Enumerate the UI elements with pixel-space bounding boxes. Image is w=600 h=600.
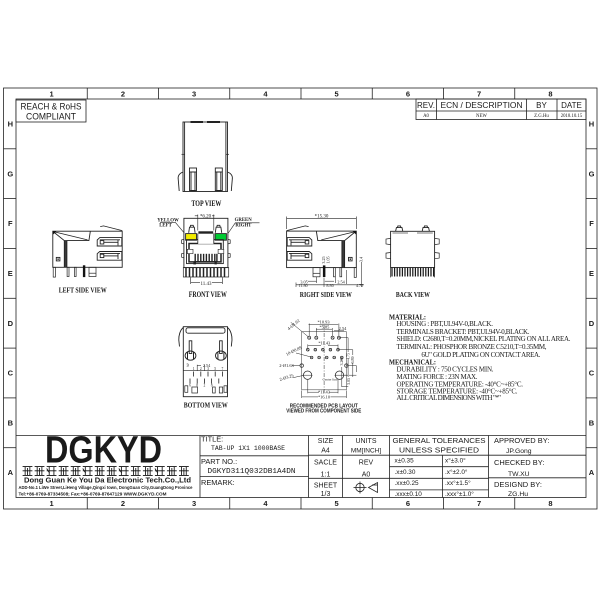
svg-text:G: G	[7, 169, 13, 178]
svg-text:Z.G.Hu: Z.G.Hu	[534, 114, 549, 119]
svg-text:3.4: 3.4	[359, 256, 364, 262]
svg-text:2: 2	[204, 384, 206, 388]
svg-text:3: 3	[192, 90, 196, 99]
svg-text:DATE: DATE	[561, 101, 582, 110]
svg-text:*5.85: *5.85	[319, 324, 330, 329]
svg-text:B: B	[8, 418, 14, 427]
svg-text:APPROVED BY:: APPROVED BY:	[494, 436, 549, 445]
svg-text:RIGHT SIDE VIEW: RIGHT SIDE VIEW	[300, 290, 352, 299]
svg-text:SHIELD: C2680,T=0.20MM,NICKEL: SHIELD: C2680,T=0.20MM,NICKEL PLATING ON…	[397, 335, 571, 343]
svg-text:MM[INCH]: MM[INCH]	[351, 448, 382, 455]
svg-text:LEFT SIDE VIEW: LEFT SIDE VIEW	[59, 286, 107, 295]
svg-text:H: H	[589, 120, 594, 129]
svg-text:FRONT VIEW: FRONT VIEW	[189, 290, 227, 299]
svg-text:ECN / DESCRIPTION: ECN / DESCRIPTION	[441, 101, 523, 110]
svg-text:TW.XU: TW.XU	[508, 471, 530, 478]
svg-text:TOP VIEW: TOP VIEW	[191, 199, 221, 208]
svg-text:SIZE: SIZE	[318, 438, 334, 445]
svg-text:1: 1	[50, 499, 54, 508]
svg-text:ZG.Hu: ZG.Hu	[508, 491, 528, 498]
svg-text:6: 6	[189, 384, 191, 388]
svg-text:2.54: 2.54	[337, 279, 345, 284]
svg-text:1.05: 1.05	[326, 256, 331, 263]
svg-text:GREEN: GREEN	[235, 218, 253, 223]
svg-text:3.25: 3.25	[339, 359, 344, 366]
svg-text:H: H	[8, 120, 13, 129]
svg-text:8.80: 8.80	[326, 283, 333, 288]
svg-text:11.43: 11.43	[200, 282, 212, 287]
svg-text:2-Ø1.63: 2-Ø1.63	[279, 363, 294, 368]
svg-text:*11.43: *11.43	[318, 341, 331, 346]
svg-text:GENERAL TOLERANCES: GENERAL TOLERANCES	[393, 438, 486, 445]
svg-text:VIEWED FROM COMPONENT SIDE: VIEWED FROM COMPONENT SIDE	[286, 409, 361, 415]
svg-text:JP.Gong: JP.Gong	[506, 448, 532, 455]
svg-text:2: 2	[121, 90, 125, 99]
svg-text:3.05: 3.05	[346, 378, 351, 385]
svg-text:*15.30: *15.30	[315, 215, 329, 220]
svg-text:F: F	[8, 219, 13, 228]
svg-text:Dong Guan Ke You Da Electronic: Dong Guan Ke You Da Electronic Tech.Co.,…	[24, 475, 191, 484]
svg-text:.xxx±0.10: .xxx±0.10	[395, 491, 423, 498]
svg-text:C: C	[589, 369, 595, 378]
svg-text:8: 8	[548, 90, 552, 99]
svg-text:11.80: 11.80	[298, 283, 307, 288]
svg-text:.xx°±1.5°: .xx°±1.5°	[445, 479, 471, 487]
svg-text:DESIGND BY:: DESIGND BY:	[494, 480, 542, 489]
svg-text:A0: A0	[423, 114, 429, 119]
svg-text:CHECKED BY:: CHECKED BY:	[494, 458, 544, 467]
svg-text:SACLE: SACLE	[314, 460, 337, 467]
svg-text:x±0.35: x±0.35	[395, 458, 415, 465]
svg-text:REV: REV	[359, 460, 374, 467]
svg-text:5: 5	[335, 90, 339, 99]
svg-text:8: 8	[196, 384, 198, 388]
svg-text:A: A	[8, 468, 14, 477]
svg-text:5: 5	[214, 367, 216, 371]
svg-text:ADD-No.1 LiWe Street,LiHeng Vi: ADD-No.1 LiWe Street,LiHeng Village,Qing…	[19, 485, 194, 490]
svg-text:1/3: 1/3	[321, 491, 331, 498]
svg-text:2.54: 2.54	[339, 326, 347, 331]
svg-text:ALL CRITICAL DIMENSIONS WITH ": ALL CRITICAL DIMENSIONS WITH "*"	[397, 394, 502, 402]
svg-text:1:1: 1:1	[321, 471, 331, 478]
svg-text:E: E	[8, 269, 13, 278]
svg-text:8: 8	[211, 384, 213, 388]
svg-text:2: 2	[121, 499, 125, 508]
svg-text:6U" GOLD PLATING ON CONTACT AR: 6U" GOLD PLATING ON CONTACT AREA.	[421, 351, 540, 359]
svg-text:6: 6	[406, 90, 410, 99]
svg-text:A4: A4	[321, 448, 330, 455]
svg-text:7: 7	[477, 499, 481, 508]
svg-text:x°±3.0°: x°±3.0°	[445, 457, 466, 465]
svg-text:Tel:+86-0769-87334508; Fax:+86: Tel:+86-0769-87334508; Fax:+86-0769-8764…	[19, 492, 168, 497]
svg-text:.xx±0.25: .xx±0.25	[395, 480, 420, 487]
svg-text:DGKYD311Q032DB1A4DN: DGKYD311Q032DB1A4DN	[208, 468, 296, 476]
svg-text:2.54: 2.54	[203, 363, 211, 368]
svg-text:SHEET: SHEET	[314, 482, 338, 489]
svg-text:RIGHT: RIGHT	[235, 224, 252, 229]
svg-text:6: 6	[406, 499, 410, 508]
svg-text:REACH & RoHS: REACH & RoHS	[21, 102, 82, 112]
svg-text:LEFT: LEFT	[159, 224, 172, 229]
svg-text:A: A	[589, 468, 595, 477]
svg-text:UNLESS SPECIFIED: UNLESS SPECIFIED	[399, 448, 479, 455]
svg-text:F: F	[589, 219, 594, 228]
svg-text:C: C	[8, 369, 14, 378]
svg-text:1: 1	[193, 367, 195, 371]
svg-text:2: 2	[200, 367, 202, 371]
svg-text:E: E	[589, 269, 594, 278]
svg-text:COMPLIANT: COMPLIANT	[26, 112, 76, 122]
svg-text:G: G	[589, 169, 595, 178]
svg-text:5: 5	[335, 499, 339, 508]
svg-text:3: 3	[192, 499, 196, 508]
svg-text:7: 7	[477, 90, 481, 99]
svg-text:1: 1	[50, 90, 54, 99]
svg-text:D: D	[8, 319, 14, 328]
svg-text:REMARK:: REMARK:	[201, 478, 235, 487]
svg-text:6.89: 6.89	[350, 357, 355, 364]
svg-text:NEW: NEW	[476, 114, 487, 119]
svg-text:.xxx°±1.0°: .xxx°±1.0°	[445, 490, 474, 498]
svg-text:BACK VIEW: BACK VIEW	[396, 290, 430, 299]
svg-text:7: 7	[222, 367, 224, 371]
svg-text:A0: A0	[362, 471, 371, 478]
svg-text:.x°±2.0°: .x°±2.0°	[445, 468, 468, 476]
svg-text:TAB-UP 1X1 1000BASE: TAB-UP 1X1 1000BASE	[211, 445, 285, 453]
svg-text:4.75: 4.75	[356, 283, 363, 288]
svg-text:8: 8	[548, 499, 552, 508]
svg-text:REV.: REV.	[417, 101, 435, 110]
svg-text:Center line: Center line	[323, 378, 338, 382]
svg-text:2018.10.15: 2018.10.15	[561, 114, 583, 119]
svg-text:BY: BY	[536, 101, 547, 110]
svg-text:B: B	[589, 418, 595, 427]
svg-text:D: D	[589, 319, 595, 328]
svg-text:DGKYD: DGKYD	[45, 430, 162, 472]
svg-text:*6.20: *6.20	[200, 214, 212, 219]
svg-text:PART NO.:: PART NO.:	[201, 457, 237, 466]
svg-text:*16.10: *16.10	[318, 394, 331, 399]
svg-text:UNITS: UNITS	[356, 438, 377, 445]
svg-text:.x±0.30: .x±0.30	[395, 469, 416, 476]
svg-text:BOTTOM VIEW: BOTTOM VIEW	[184, 401, 228, 410]
svg-text:TITLE:: TITLE:	[201, 435, 223, 444]
